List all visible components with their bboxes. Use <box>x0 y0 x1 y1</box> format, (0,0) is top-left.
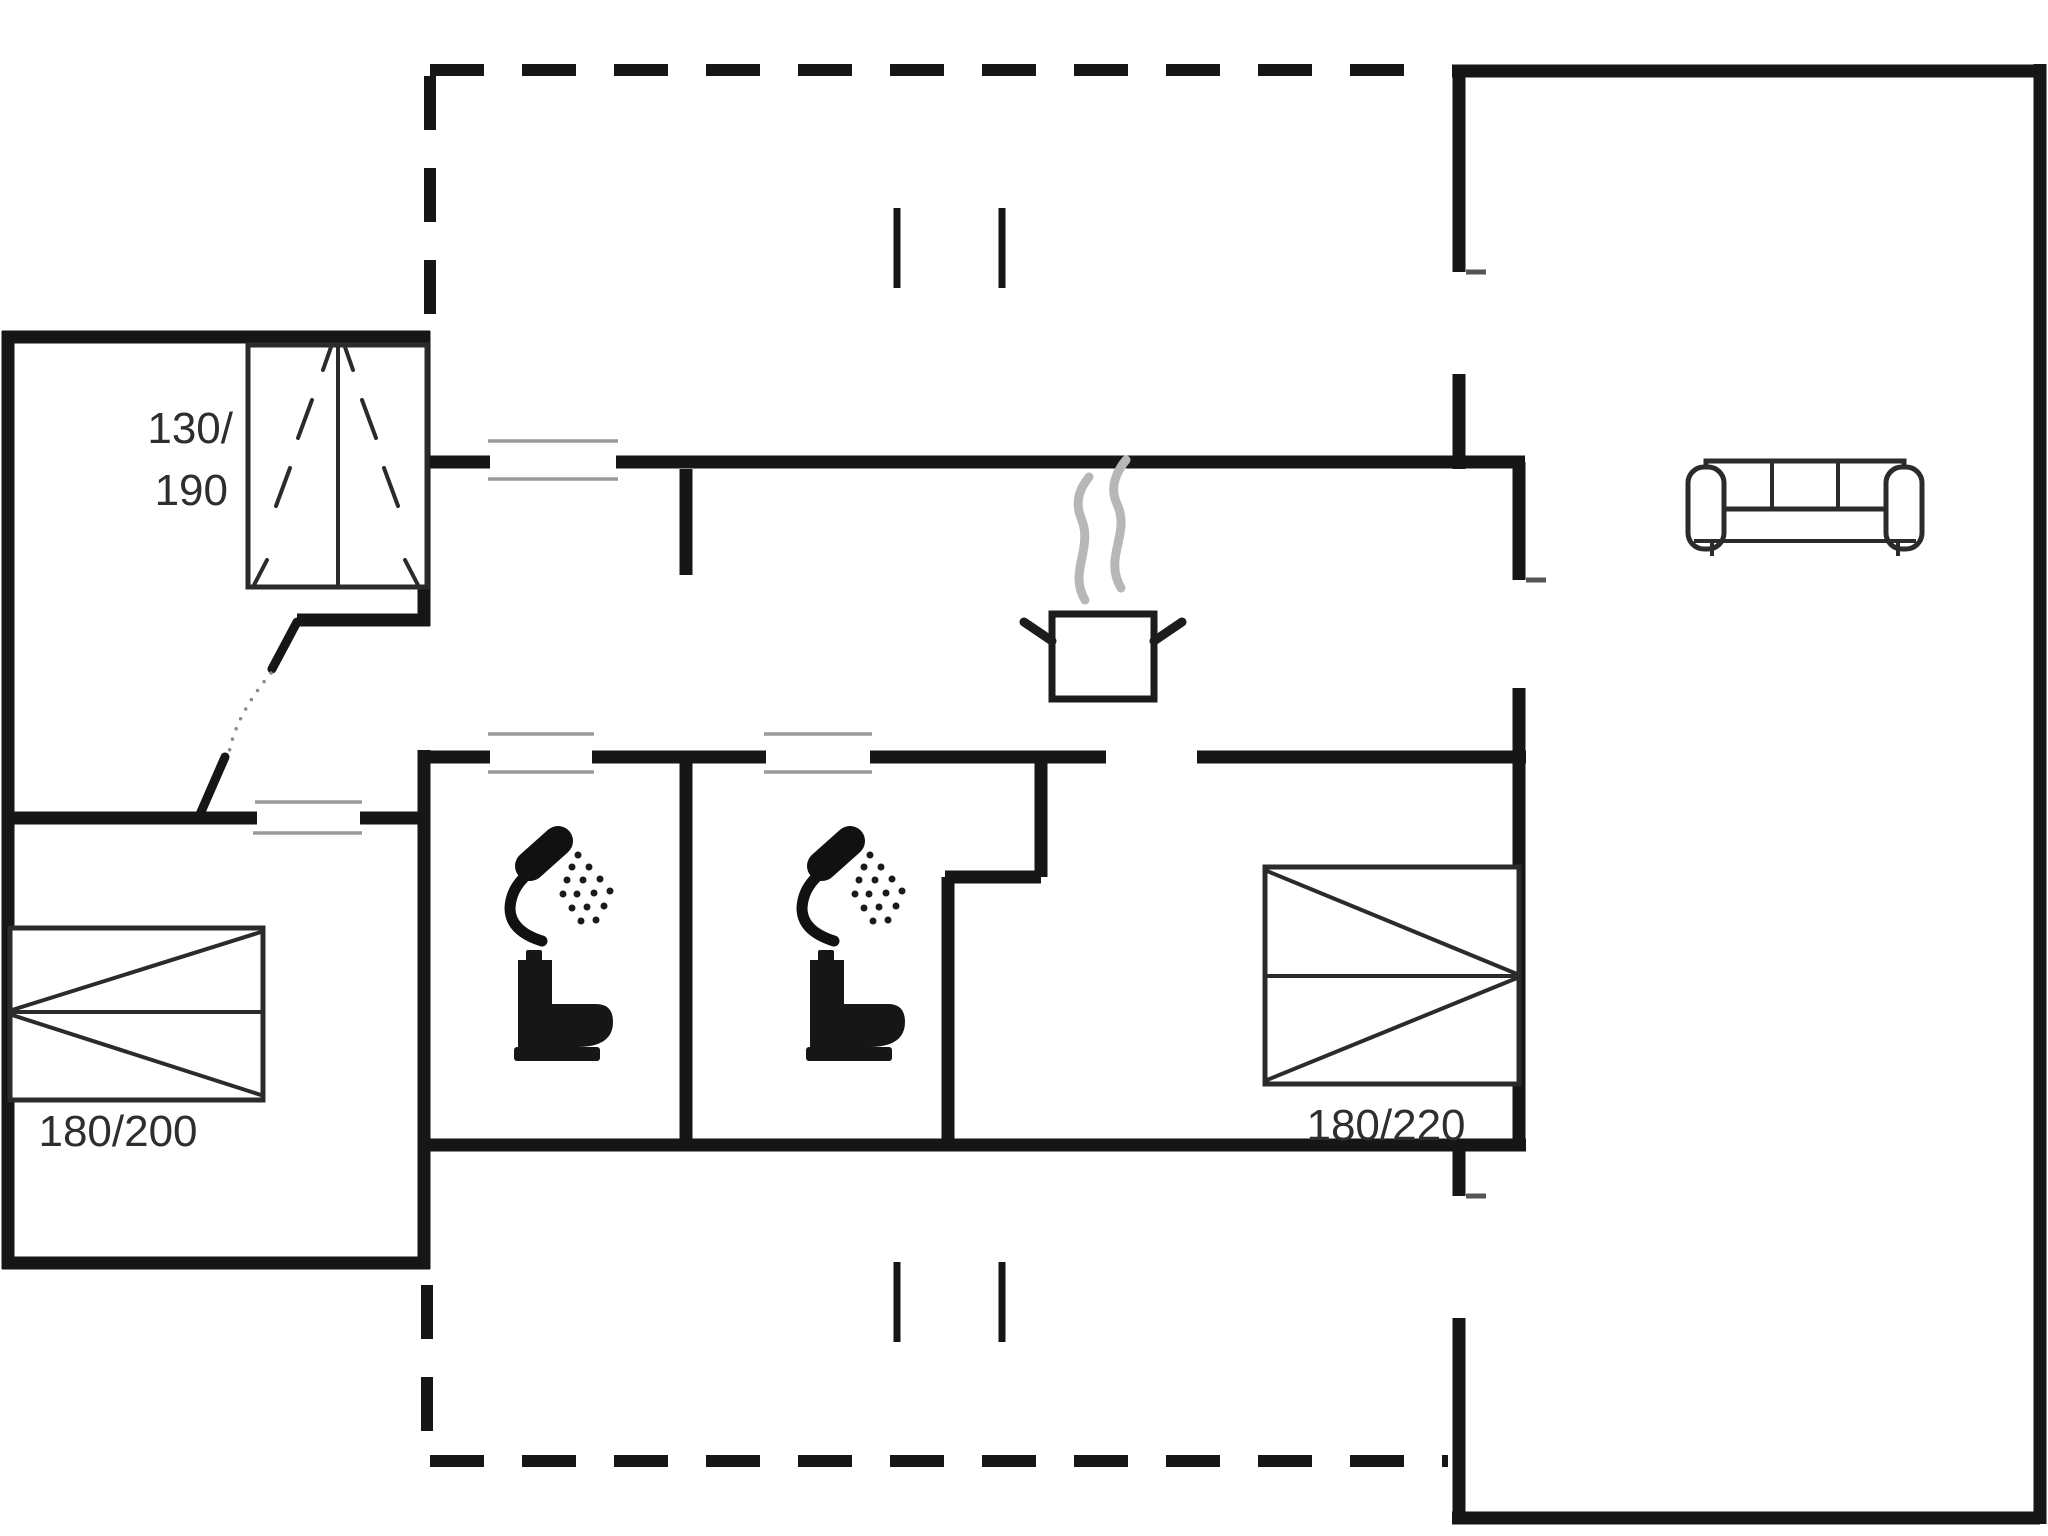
sofa-icon <box>1688 461 1922 556</box>
bed-top-left: 130/ 190 <box>147 345 427 587</box>
door-leaf-bedroom-left <box>201 757 225 812</box>
bed-size-label: 180/220 <box>1306 1101 1465 1150</box>
room-zones <box>8 70 2040 1518</box>
interior-doors <box>201 622 297 812</box>
bathroom-1-icons <box>510 841 614 1061</box>
room-kitchen <box>424 462 1519 757</box>
bed-size-label: 180/200 <box>38 1107 197 1156</box>
terrace-post-ticks <box>897 208 1002 1342</box>
door-swing-arc <box>229 673 271 753</box>
exterior-and-interior-walls <box>2 64 2040 1524</box>
room-living <box>1459 71 2040 1518</box>
room-bathroom-1 <box>424 757 687 1145</box>
bed-size-label: 130/ <box>147 404 233 453</box>
shower-icon <box>510 841 614 941</box>
bed-size-label: 190 <box>155 466 228 515</box>
terrace-north <box>430 70 1452 462</box>
floor-plan-drawing: 130/ 190 180/200 180/220 <box>0 0 2048 1536</box>
shower-icon <box>802 841 906 941</box>
toilet-icon <box>806 950 905 1061</box>
roof-outline-dashed <box>427 70 1448 1461</box>
bed-right: 180/220 <box>1265 867 1519 1150</box>
door-leaf-hall <box>272 622 297 669</box>
bed-bottom-left: 180/200 <box>10 928 263 1156</box>
floor-plan-page: 130/ 190 180/200 180/220 <box>0 0 2048 1536</box>
terrace-south <box>427 1145 1452 1461</box>
room-bathroom-2 <box>687 757 1041 1145</box>
toilet-icon <box>514 950 613 1061</box>
bathroom-2-icons <box>802 841 906 1061</box>
steaming-pot-icon <box>1024 460 1182 699</box>
